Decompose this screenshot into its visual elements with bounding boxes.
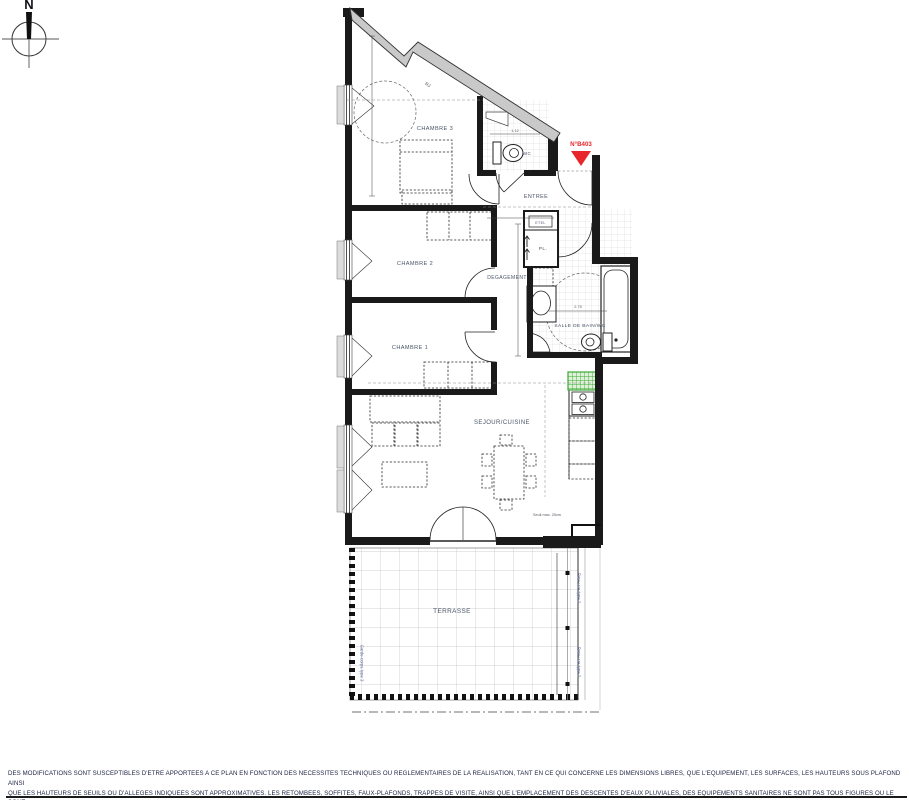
label-placard: PL. [539, 246, 547, 252]
toilet-bowl-wc [503, 145, 523, 162]
toilet-tank-bain [603, 333, 612, 351]
window-sejour [337, 425, 372, 513]
appliance [569, 441, 597, 464]
dim-bain: 2.75 [574, 305, 581, 309]
pare-vue-label-2: Pare-vue type 2 [577, 647, 582, 678]
door-chambre3 [469, 174, 499, 204]
toilet-bowl-bain [582, 334, 601, 350]
terrace-french-doors [430, 507, 496, 541]
label-chambre3: CHAMBRE 3 [417, 126, 453, 132]
label-chambre2: CHAMBRE 2 [397, 261, 433, 267]
bed-chambre3 [400, 140, 452, 193]
coffee-table [382, 462, 427, 487]
entry-door [558, 171, 592, 205]
cabinet [569, 464, 597, 479]
terrace-post [566, 571, 570, 575]
disclaimer-line-2: QUE LES HAUTEURS DE SEUILS OU D'ALLEGES … [8, 789, 905, 800]
pare-vue-label-1: Pare-vue type 2 [577, 573, 582, 604]
roof-label: RJ [424, 81, 431, 88]
green-duct [568, 372, 599, 390]
floor-plan-drawing: N Pare-vue type 2 Pare-vue type 2 Garde-… [0, 0, 909, 800]
label-entree: ENTREE [524, 194, 548, 200]
door-chambre1 [465, 332, 495, 362]
disclaimer-line-1: DES MODIFICATIONS SONT SUSCEPTIBLES D'ET… [8, 769, 905, 789]
door-wc [496, 173, 524, 192]
wardrobe-chambre2 [427, 212, 492, 240]
chair [482, 476, 492, 488]
appliance [569, 418, 597, 441]
label-salle-de-bain: SALLE DE BAIN/WC [554, 323, 605, 329]
label-degagement: DEGAGEMENT [487, 275, 527, 281]
chair [500, 435, 512, 445]
dim-wc: 1.12 [511, 129, 518, 133]
chair [500, 500, 512, 510]
terrace-post [566, 626, 570, 630]
turning-circle-chambre3 [354, 81, 416, 143]
wardrobe-chambre1 [424, 362, 496, 388]
terrace-tiles [350, 548, 578, 700]
toilet-tank-wc [493, 142, 501, 164]
window-chambre3 [337, 85, 374, 125]
dining-table [494, 446, 524, 499]
unit-number: N°B403 [570, 141, 592, 148]
garde-corps-label: Garde-corps type 3 [360, 645, 365, 682]
seuil-note: Seuil max. 25cm [533, 513, 561, 517]
chair [526, 454, 536, 466]
footer-divider [6, 796, 907, 798]
terrace-post [566, 682, 570, 686]
closet-column [524, 211, 558, 267]
label-etel: ETEL [535, 221, 546, 225]
door-chambre2 [465, 268, 495, 298]
label-terrasse: TERRASSE [433, 608, 471, 615]
compass-needle-icon [26, 12, 32, 39]
label-wc: WC [523, 151, 532, 156]
window-chambre1 [337, 335, 372, 378]
label-chambre1: CHAMBRE 1 [392, 345, 428, 351]
desk-chambre3 [402, 190, 452, 204]
chair [482, 454, 492, 466]
sofa [370, 396, 440, 422]
chair [526, 476, 536, 488]
floor-plan-page: N Pare-vue type 2 Pare-vue type 2 Garde-… [0, 0, 909, 800]
unit-pointer-icon [571, 151, 591, 166]
diagonal-wall [350, 8, 560, 142]
compass-rose: N [2, 0, 59, 68]
compass-north-label: N [24, 0, 33, 12]
label-sejour: SEJOUR/CUISINE [474, 420, 530, 426]
unit-marker: N°B403 [570, 141, 592, 166]
window-chambre2 [337, 240, 372, 280]
